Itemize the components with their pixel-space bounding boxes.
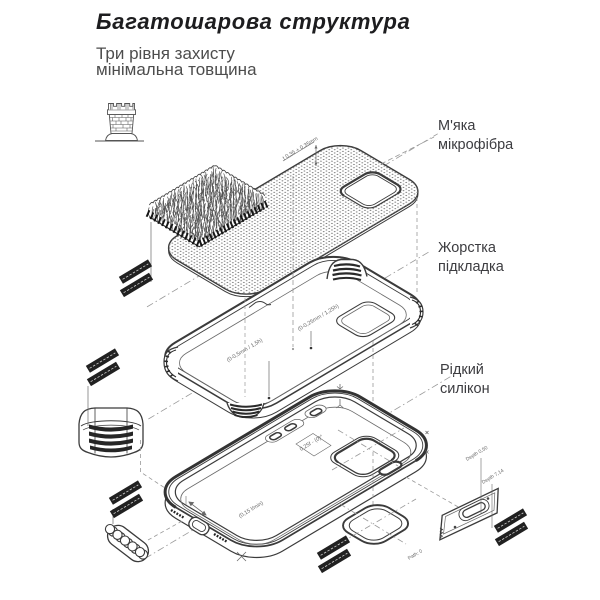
svg-text:Depth 7,14: Depth 7,14 (481, 468, 505, 486)
svg-text:Depth 0,50: Depth 0,50 (465, 445, 489, 463)
svg-text:Path: 0: Path: 0 (407, 548, 424, 561)
